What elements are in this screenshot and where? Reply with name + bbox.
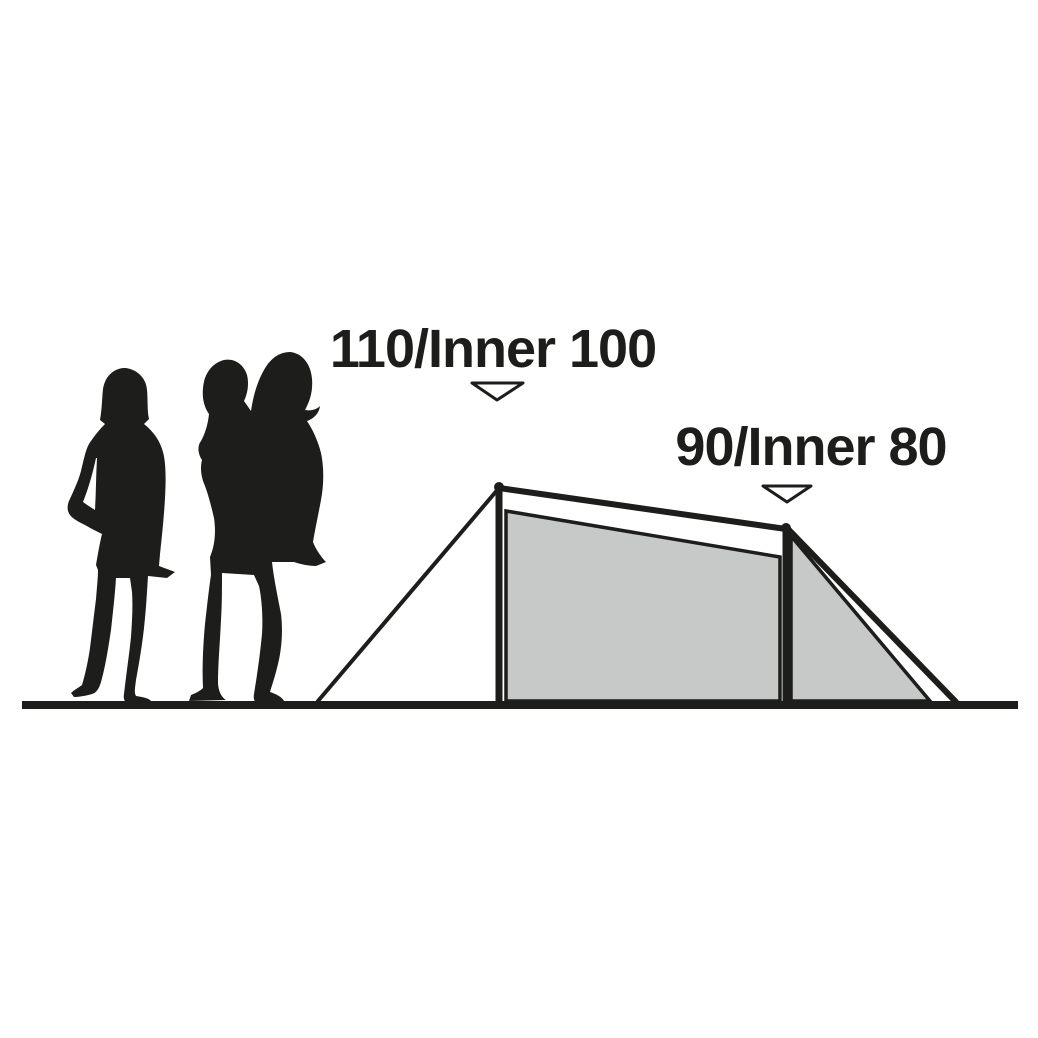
front-pole-tip (494, 482, 504, 492)
rear-pole-tip (781, 523, 791, 533)
tent-illustration (318, 482, 956, 702)
inner-tent-panel (506, 511, 780, 701)
rear-inner-panel (791, 536, 930, 701)
rear-height-label: 90/Inner 80 (675, 417, 946, 477)
tent-height-diagram: 110/Inner 100 90/Inner 80 (0, 0, 1038, 1038)
scale-figures (68, 352, 326, 703)
diagram-svg: 110/Inner 100 90/Inner 80 (0, 0, 1038, 1038)
front-height-marker-triangle-down-icon (472, 383, 523, 400)
adult-with-child-silhouette (189, 352, 326, 703)
standing-woman-silhouette (68, 368, 175, 703)
front-height-label: 110/Inner 100 (330, 319, 656, 379)
front-guy-line (318, 488, 499, 701)
rear-height-marker-triangle-down-icon (763, 486, 811, 502)
